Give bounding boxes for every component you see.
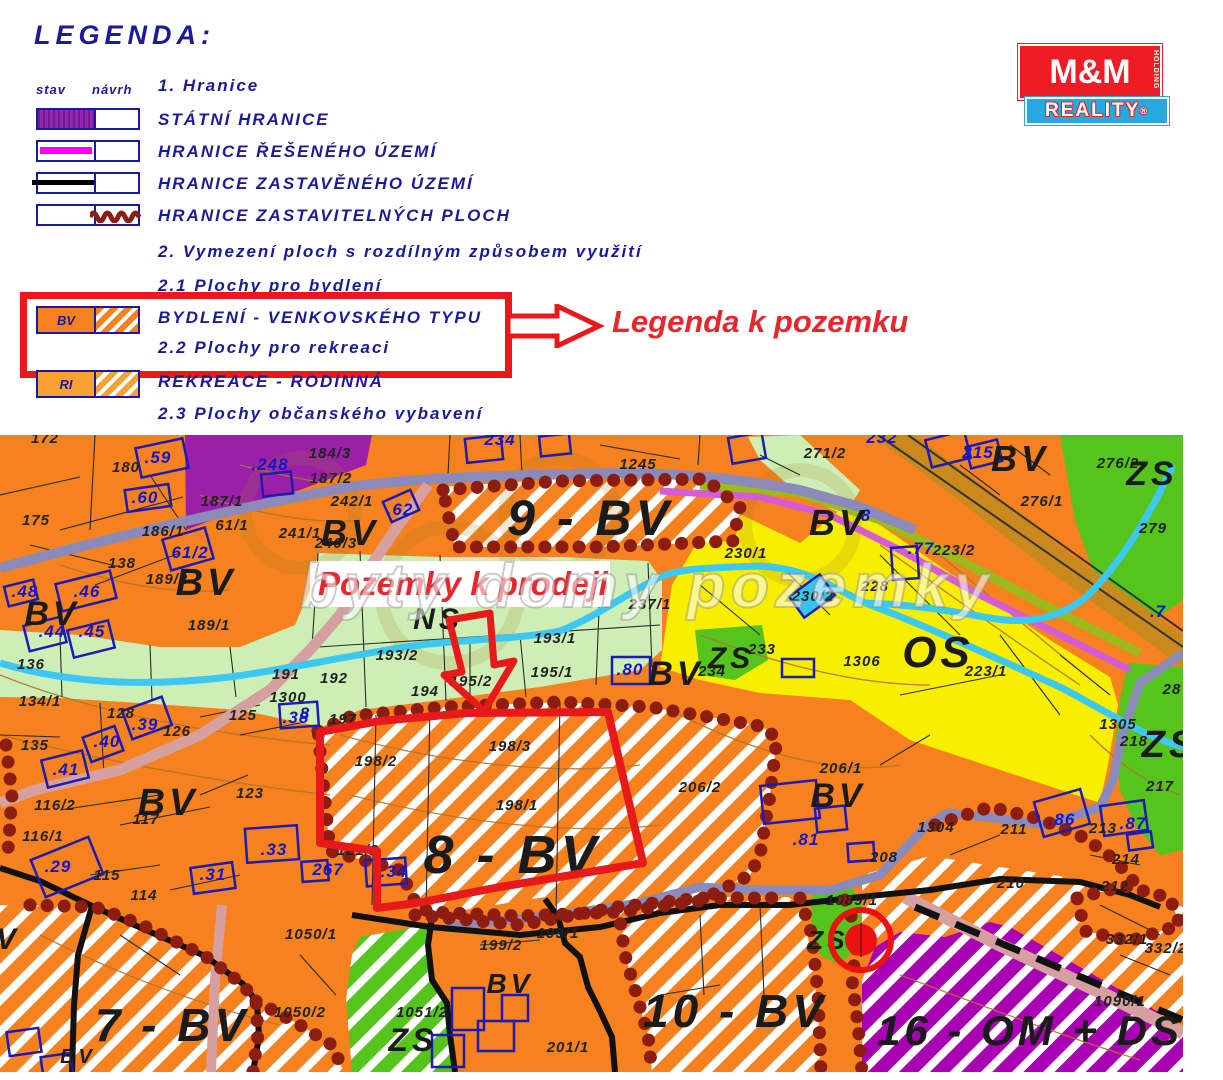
- parcel-label: 135: [21, 737, 49, 754]
- black-line-swatch: [32, 180, 98, 185]
- zone-label: OS: [902, 628, 974, 677]
- parcel-label: 232: [865, 435, 897, 447]
- mm-reality-logo: M&M HOLDING REALITY®: [1018, 44, 1168, 124]
- legend-ri-label: REKREACE - RODINNÁ: [158, 372, 384, 392]
- parcel-label: 1050/2: [274, 1004, 326, 1021]
- parcel-label: 186/1: [142, 523, 185, 540]
- legend-row-label: HRANICE ŘEŠENÉHO ÚZEMÍ: [158, 142, 437, 162]
- parcel-label: 267: [311, 860, 344, 879]
- parcel-label: 271/2: [803, 445, 847, 462]
- zone-label: ZS: [806, 925, 848, 955]
- zone-label: 10 - BV: [643, 985, 827, 1037]
- legend-title: LEGENDA:: [34, 20, 215, 51]
- legend-panel: LEGENDA: stav návrh 1. Hranice STÁTNÍ HR…: [0, 0, 1000, 430]
- parcel-label: .248: [251, 455, 288, 474]
- zone-label: BV: [809, 502, 867, 543]
- swatch-ri-stav: RI: [36, 370, 96, 398]
- parcel-label: .40: [94, 732, 121, 751]
- swatch-zastavitelne-plochy-navrh: [94, 204, 140, 226]
- parcel-label: 192: [320, 670, 348, 687]
- logo-reality: REALITY®: [1025, 97, 1169, 125]
- legend-callout: Legenda k pozemku: [612, 304, 908, 340]
- parcel-label: 187/2: [310, 470, 353, 487]
- zone-label: ZS: [707, 642, 754, 675]
- logo-registered-mark: ®: [1140, 106, 1149, 116]
- parcel-label: .87: [1120, 814, 1147, 833]
- parcel-label: 210: [996, 875, 1025, 892]
- parcel-label: 223/2: [932, 542, 976, 559]
- zone-label: 9 - BV: [507, 490, 673, 546]
- parcel-label: 172: [31, 435, 59, 447]
- parcel-label: 1300: [269, 689, 306, 706]
- parcel-label: 116/1: [22, 828, 63, 845]
- magenta-line-swatch: [40, 147, 92, 154]
- parcel-label: 136: [17, 656, 45, 673]
- ri-code: RI: [38, 372, 94, 396]
- parcel-label: .81: [793, 830, 820, 849]
- arrow-right-icon: [505, 304, 605, 348]
- legend-row-label: HRANICE ZASTAVĚNÉHO ÚZEMÍ: [158, 174, 474, 194]
- purple-fill-swatch: [38, 110, 94, 128]
- logo-holding: HOLDING: [1152, 50, 1159, 89]
- parcel-label: 195/1: [531, 664, 574, 681]
- parcel-label: 199/2: [480, 937, 523, 954]
- parcel-label: 208: [869, 849, 898, 866]
- parcel-label: .7: [1150, 602, 1167, 621]
- zone-label: 7 - BV: [95, 999, 249, 1051]
- zoning-map: Pozemky k prodeji byty domy pozemky: [0, 435, 1183, 1072]
- legend-row-label: STÁTNÍ HRANICE: [158, 110, 330, 130]
- zone-label: BV: [138, 782, 199, 824]
- parcel-label: 116/2: [34, 797, 75, 814]
- zone-label: ZS: [1141, 724, 1183, 766]
- zone-label: BV: [648, 655, 703, 693]
- zone-label: ZS: [388, 1022, 438, 1058]
- parcel-label: 61/2: [171, 543, 208, 562]
- parcel-label: 199/1: [537, 925, 580, 942]
- swatch-zastavene-uzemi-navrh: [94, 172, 140, 194]
- page: { "legend": { "title": "LEGENDA:", "col_…: [0, 0, 1223, 1080]
- parcel-label: 8: [300, 704, 310, 723]
- parcel-label: 276/1: [1020, 493, 1064, 510]
- parcel-label: 217: [1145, 778, 1174, 795]
- swatch-resene-uzemi-navrh: [94, 140, 140, 162]
- logo-mm: M&M HOLDING: [1018, 44, 1162, 100]
- parcel-label: 189/1: [188, 617, 231, 634]
- parcel-label: 198/1: [496, 797, 539, 814]
- parcel-label: 125: [229, 707, 257, 724]
- parcel-label: 206/1: [819, 760, 863, 777]
- swatch-statni-hranice-stav: [36, 108, 96, 130]
- parcel-label: 1306: [843, 653, 880, 670]
- parcel-label: .60: [132, 488, 159, 507]
- parcel-label: .33: [261, 840, 288, 859]
- parcel-label: 138: [108, 555, 136, 572]
- parcel-label: .62: [387, 500, 414, 519]
- legend-col-navrh: návrh: [92, 82, 132, 97]
- swatch-ri-navrh: [94, 370, 140, 398]
- parcel-label: .59: [145, 448, 172, 467]
- parcel-label: .80: [617, 660, 644, 679]
- zone-label: V: [0, 923, 20, 956]
- legend-section-2-3: 2.3 Plochy občanského vybavení: [158, 404, 484, 424]
- zone-label: BV: [176, 562, 237, 604]
- darkred-wavy-swatch: [90, 207, 144, 223]
- parcel-label: .77: [908, 539, 935, 558]
- parcel-label: 123: [236, 785, 264, 802]
- parcel-label: .41: [53, 760, 80, 779]
- legend-highlight-frame: [20, 292, 512, 378]
- parcel-label: .29: [45, 857, 72, 876]
- parcel-label: 201/1: [546, 1039, 590, 1056]
- zone-label: BV: [810, 777, 865, 815]
- swatch-resene-uzemi-stav: [36, 140, 96, 162]
- zone-label: BV: [321, 512, 379, 553]
- parcel-label: 198/2: [355, 753, 398, 770]
- parcel-label: 332/2: [1145, 940, 1183, 957]
- parcel-label: 279: [1138, 520, 1167, 537]
- map-canvas: .59.60.248.62.46.48.44.4561/2.38.39.40.4…: [0, 435, 1183, 1072]
- parcel-label: 230/1: [724, 545, 768, 562]
- parcel-label: 237/1: [628, 596, 672, 613]
- parcel-label: 61/1: [215, 517, 248, 534]
- parcel-label: 191: [272, 666, 300, 683]
- parcel-label: .45: [79, 622, 106, 641]
- parcel-label: 1051/2: [396, 1004, 448, 1021]
- parcel-label: 28: [1162, 681, 1182, 698]
- parcel-label: .31: [200, 865, 227, 884]
- parcel-label: 214: [1111, 851, 1140, 868]
- swatch-zastavene-uzemi-stav: [36, 172, 96, 194]
- swatch-zastavitelne-plochy-stav: [36, 204, 96, 226]
- parcel-label: .34: [381, 862, 408, 881]
- parcel-label: 134/1: [19, 693, 62, 710]
- parcel-label: 193/2: [376, 647, 419, 664]
- zone-label: 16 - OM + DS: [877, 1007, 1183, 1054]
- parcel-label: 187/1: [201, 493, 244, 510]
- parcel-label: 211: [1000, 821, 1028, 838]
- zone-label: BV: [487, 968, 534, 999]
- zone-label: BV: [60, 1046, 96, 1068]
- parcel-label: 175: [22, 512, 50, 529]
- parcel-label: 1050/1: [285, 926, 337, 943]
- parcel-label: 180: [112, 459, 140, 476]
- parcel-label: 198/3: [489, 738, 532, 755]
- parcel-label: 1305: [1099, 716, 1136, 733]
- parcel-label: 228: [860, 578, 889, 595]
- parcel-label: 193/1: [534, 630, 577, 647]
- legend-section-2: 2. Vymezení ploch s rozdílným způsobem v…: [158, 242, 643, 262]
- parcel-label: 234: [483, 435, 515, 449]
- parcel-label: 230/2: [791, 588, 835, 605]
- legend-section-1: 1. Hranice: [158, 76, 259, 96]
- parcel-label: 126: [163, 723, 191, 740]
- parcel-label: 1304: [917, 819, 954, 836]
- parcel-label: 212: [1100, 878, 1129, 895]
- parcel-label: 213: [1088, 820, 1117, 837]
- parcel-label: .86: [1049, 810, 1076, 829]
- parcel-label: 242/1: [330, 493, 374, 510]
- parcel-label: 1089/1: [826, 892, 878, 909]
- sale-label: Pozemky k prodeji: [310, 561, 610, 607]
- swatch-statni-hranice-navrh: [94, 108, 140, 130]
- parcel-label: 184/3: [309, 445, 352, 462]
- parcel-label: 206/2: [678, 779, 722, 796]
- parcel-label: 194: [411, 683, 439, 700]
- parcel-label: 115: [94, 867, 121, 884]
- zone-label: BV: [24, 595, 79, 633]
- legend-row-label: HRANICE ZASTAVITELNÝCH PLOCH: [158, 206, 511, 226]
- parcel-label: 114: [131, 887, 158, 904]
- parcel-label: 215: [961, 443, 993, 462]
- parcel-label: 1245: [619, 456, 656, 473]
- zone-label: BV: [991, 438, 1049, 479]
- parcel-label: .39: [132, 715, 159, 734]
- parcel-label: 332/1: [1106, 931, 1149, 948]
- parcel-label: 128: [107, 705, 135, 722]
- zone-label: ZS: [1125, 455, 1177, 493]
- legend-col-stav: stav: [36, 82, 66, 97]
